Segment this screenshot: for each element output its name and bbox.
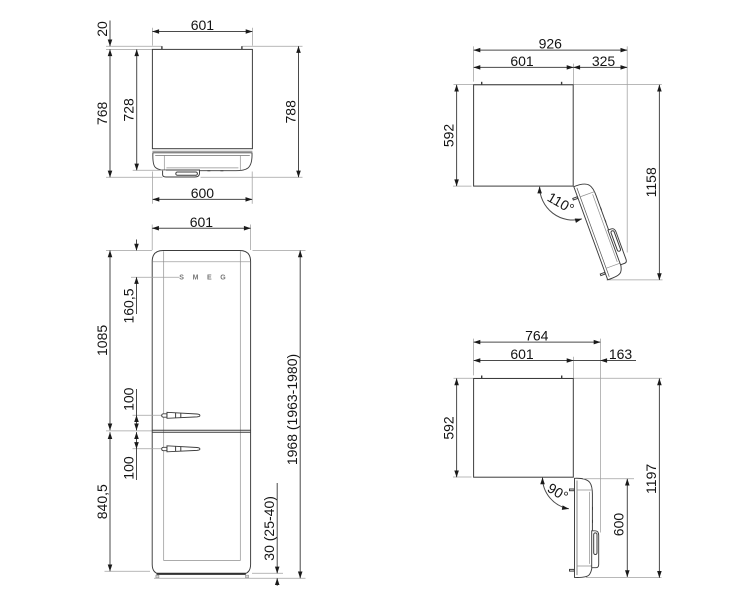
svg-text:592: 592	[440, 124, 456, 148]
svg-text:768: 768	[94, 102, 110, 126]
svg-text:SMEG: SMEG	[179, 275, 234, 282]
svg-text:601: 601	[191, 17, 215, 33]
svg-text:100: 100	[120, 387, 136, 411]
svg-text:592: 592	[440, 416, 456, 440]
svg-text:160,5: 160,5	[120, 288, 136, 323]
svg-text:1968 (1963-1980): 1968 (1963-1980)	[284, 354, 300, 465]
svg-text:926: 926	[539, 36, 563, 52]
svg-text:840,5: 840,5	[94, 484, 110, 519]
svg-text:600: 600	[191, 185, 215, 201]
svg-text:90°: 90°	[545, 480, 571, 505]
svg-text:788: 788	[282, 100, 298, 124]
svg-text:100: 100	[120, 456, 136, 480]
svg-text:601: 601	[510, 53, 534, 69]
svg-text:601: 601	[510, 346, 534, 362]
svg-text:600: 600	[611, 513, 627, 537]
svg-text:30 (25-40): 30 (25-40)	[261, 496, 277, 561]
svg-text:601: 601	[190, 214, 214, 230]
svg-text:1085: 1085	[94, 325, 110, 356]
svg-text:110°: 110°	[545, 189, 577, 217]
svg-text:20: 20	[94, 21, 110, 37]
svg-text:325: 325	[592, 53, 616, 69]
svg-text:764: 764	[525, 328, 549, 344]
svg-text:1158: 1158	[643, 167, 659, 197]
svg-text:728: 728	[121, 98, 137, 122]
svg-text:163: 163	[609, 346, 633, 362]
svg-text:1197: 1197	[643, 464, 659, 494]
